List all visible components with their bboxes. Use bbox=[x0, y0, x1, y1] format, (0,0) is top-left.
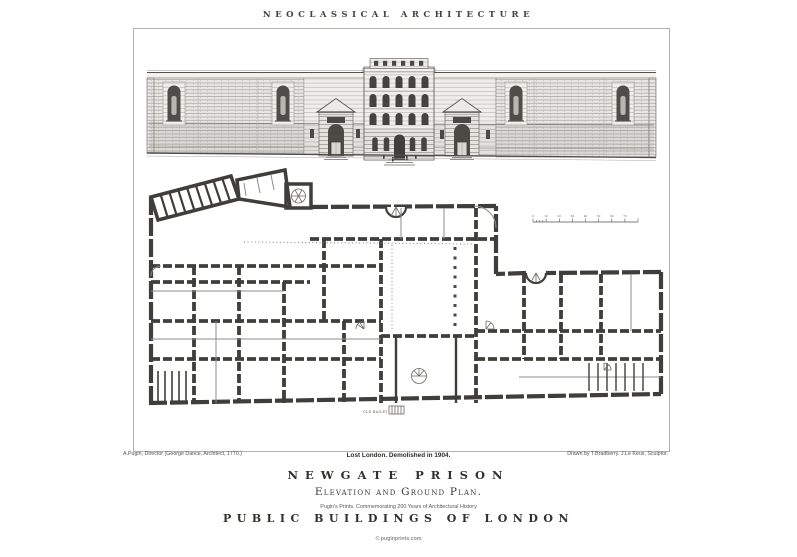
svg-text:20: 20 bbox=[557, 214, 561, 218]
stair-fan bbox=[486, 321, 494, 329]
statue-niche bbox=[612, 82, 634, 125]
svg-text:50: 50 bbox=[597, 214, 601, 218]
statue-niche bbox=[163, 82, 185, 125]
svg-text:30: 30 bbox=[571, 214, 575, 218]
print-page: NEOCLASSICAL ARCHITECTURE bbox=[0, 0, 797, 557]
plate-subtitle: Lost London. Demolished in 1904. bbox=[0, 452, 797, 459]
elevation-drawing bbox=[147, 59, 656, 166]
page-header-title: NEOCLASSICAL ARCHITECTURE bbox=[0, 10, 797, 20]
drawing-title: Elevation and Ground Plan. bbox=[0, 486, 797, 498]
colonnade-piers bbox=[454, 247, 457, 326]
gate-pavilion bbox=[317, 99, 355, 160]
svg-text:40: 40 bbox=[584, 214, 588, 218]
series-title: PUBLIC BUILDINGS OF LONDON bbox=[0, 512, 797, 525]
ground-plan: OLD BAILEY bbox=[149, 170, 661, 414]
entrance-steps bbox=[389, 406, 404, 414]
svg-text:10: 10 bbox=[544, 214, 548, 218]
statue-niche bbox=[505, 82, 527, 125]
plate-title: NEWGATE PRISON bbox=[0, 468, 797, 482]
watermark: © puginprints.com bbox=[0, 536, 797, 542]
scale-bar: 010203040506070 bbox=[532, 214, 638, 222]
plan-street-label: OLD BAILEY bbox=[363, 410, 388, 414]
gate-pavilion bbox=[443, 99, 481, 160]
central-block bbox=[363, 59, 435, 166]
scale-bar-labels: 010203040506070 bbox=[532, 214, 627, 218]
cell-row bbox=[158, 371, 186, 403]
statue-niche bbox=[272, 82, 294, 125]
series-note: Pugin's Prints. Commemorating 200 Years … bbox=[0, 504, 797, 510]
svg-text:0: 0 bbox=[532, 214, 534, 218]
svg-text:60: 60 bbox=[610, 214, 614, 218]
plate-drawing: OLD BAILEY 010203040506070 bbox=[134, 29, 669, 451]
spiral-stair bbox=[292, 189, 306, 203]
svg-text:70: 70 bbox=[623, 214, 627, 218]
stair-fan bbox=[412, 369, 427, 384]
plate-frame: OLD BAILEY 010203040506070 bbox=[133, 28, 670, 452]
